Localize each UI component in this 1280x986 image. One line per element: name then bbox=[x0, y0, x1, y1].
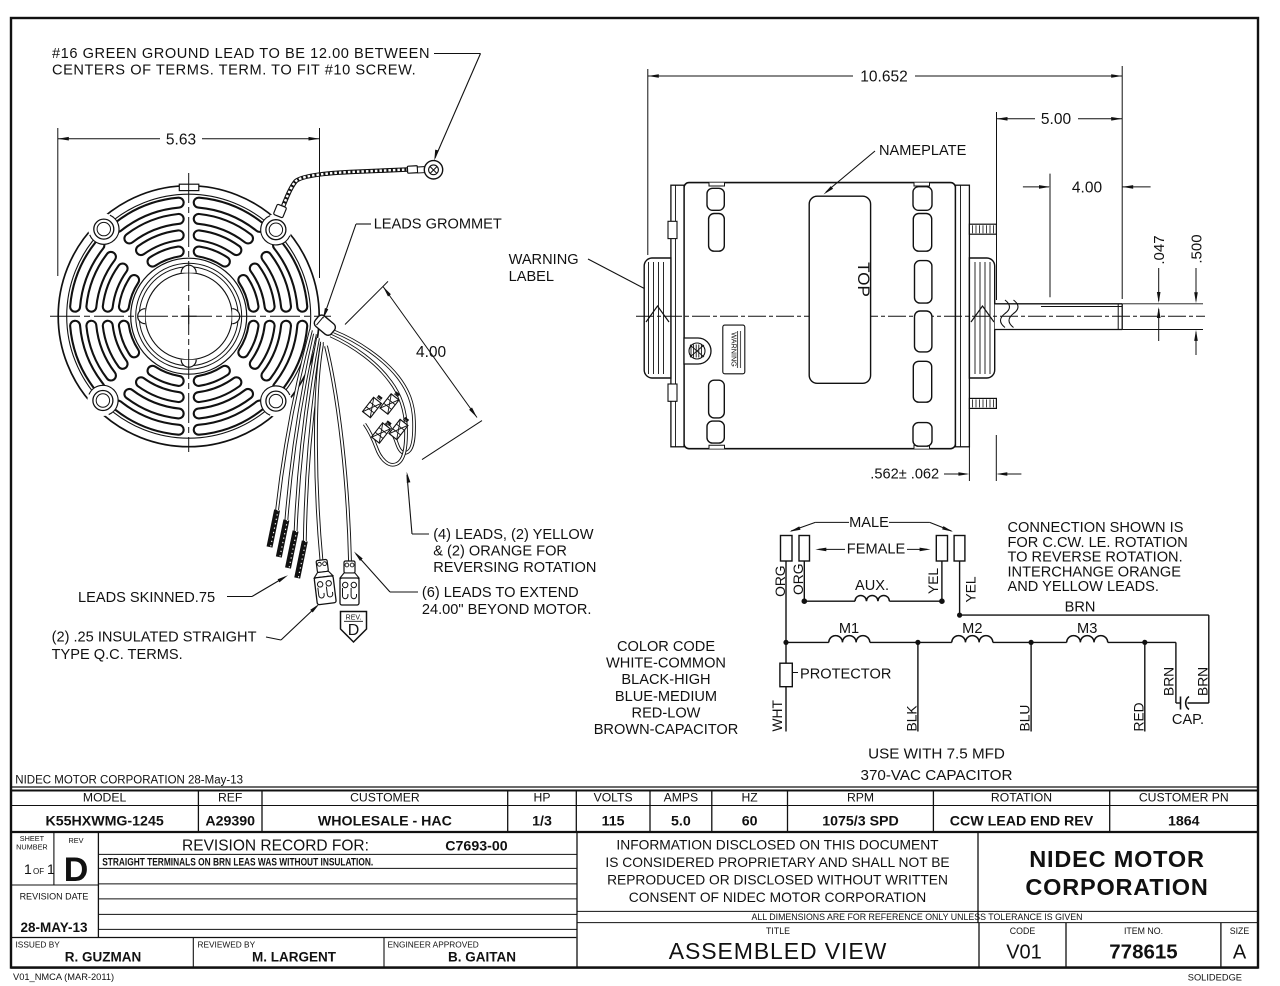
svg-text:INFORMATION DISCLOSED ON THIS: INFORMATION DISCLOSED ON THIS DOCUMENT bbox=[616, 838, 939, 853]
svg-text:WHOLESALE - HAC: WHOLESALE - HAC bbox=[318, 814, 452, 830]
svg-text:5.00: 5.00 bbox=[1041, 111, 1072, 128]
svg-text:CUSTOMER PN: CUSTOMER PN bbox=[1139, 791, 1229, 805]
svg-text:V01: V01 bbox=[1006, 942, 1042, 964]
svg-text:REVISION DATE: REVISION DATE bbox=[20, 892, 89, 902]
svg-text:OF: OF bbox=[33, 867, 44, 876]
svg-text:24.00" BEYOND MOTOR.: 24.00" BEYOND MOTOR. bbox=[422, 602, 592, 618]
svg-text:LABEL: LABEL bbox=[509, 269, 554, 285]
svg-text:REV.: REV. bbox=[346, 614, 362, 621]
svg-text:BRN: BRN bbox=[1162, 667, 1177, 696]
svg-text:CAP.: CAP. bbox=[1172, 712, 1204, 728]
svg-text:28-MAY-13: 28-MAY-13 bbox=[20, 920, 88, 935]
svg-text:ITEM NO.: ITEM NO. bbox=[1124, 926, 1163, 936]
svg-text:B. GAITAN: B. GAITAN bbox=[448, 950, 516, 965]
svg-text:RPM: RPM bbox=[847, 791, 874, 805]
svg-text:M2: M2 bbox=[962, 621, 982, 637]
svg-text:REVISION RECORD FOR:: REVISION RECORD FOR: bbox=[182, 838, 369, 855]
svg-text:HP: HP bbox=[534, 791, 551, 805]
svg-text:4.00: 4.00 bbox=[416, 344, 447, 361]
svg-text:NIDEC MOTOR CORPORATION 28-May: NIDEC MOTOR CORPORATION 28-May-13 bbox=[15, 775, 243, 787]
svg-text:1: 1 bbox=[24, 861, 32, 877]
svg-text:ASSEMBLED VIEW: ASSEMBLED VIEW bbox=[669, 938, 887, 964]
svg-text:MALE: MALE bbox=[849, 515, 889, 531]
svg-text:RED: RED bbox=[1132, 702, 1147, 731]
svg-text:#16 GREEN GROUND LEAD TO BE 12: #16 GREEN GROUND LEAD TO BE 12.00 BETWEE… bbox=[52, 46, 430, 62]
svg-text:CENTERS OF TERMS. TERM. TO FI: CENTERS OF TERMS. TERM. TO FIT #10 SCREW… bbox=[52, 63, 416, 79]
svg-text:FOR C.CW. LE. ROTATION: FOR C.CW. LE. ROTATION bbox=[1008, 535, 1188, 551]
svg-text:CONSENT OF NIDEC MOTOR CORPORA: CONSENT OF NIDEC MOTOR CORPORATION bbox=[629, 890, 926, 905]
svg-text:CUSTOMER: CUSTOMER bbox=[350, 791, 420, 805]
svg-text:10.652: 10.652 bbox=[860, 69, 907, 86]
svg-text:TO REVERSE ROTATION.: TO REVERSE ROTATION. bbox=[1008, 550, 1183, 566]
svg-text:REF: REF bbox=[218, 791, 242, 805]
svg-text:AMPS: AMPS bbox=[664, 791, 699, 805]
svg-text:FEMALE: FEMALE bbox=[847, 542, 906, 558]
svg-text:WHT: WHT bbox=[770, 700, 785, 732]
svg-text:SIZE: SIZE bbox=[1230, 926, 1250, 936]
svg-text:& (2) ORANGE FOR: & (2) ORANGE FOR bbox=[433, 544, 567, 560]
svg-text:AND YELLOW LEADS.: AND YELLOW LEADS. bbox=[1008, 579, 1159, 595]
svg-text:TOP: TOP bbox=[854, 262, 873, 297]
svg-text:NAMEPLATE: NAMEPLATE bbox=[879, 143, 967, 159]
svg-text:BROWN-CAPACITOR: BROWN-CAPACITOR bbox=[594, 722, 739, 738]
svg-text:M3: M3 bbox=[1077, 621, 1097, 637]
svg-text:LEADS GROMMET: LEADS GROMMET bbox=[374, 217, 502, 233]
svg-text:ALL DIMENSIONS ARE FOR REFEREN: ALL DIMENSIONS ARE FOR REFERENCE ONLY UN… bbox=[752, 912, 1083, 922]
svg-text:115: 115 bbox=[602, 814, 625, 830]
svg-text:COLOR CODE: COLOR CODE bbox=[617, 639, 715, 655]
svg-text:BLK: BLK bbox=[905, 705, 920, 732]
svg-text:1: 1 bbox=[47, 861, 55, 877]
svg-text:K55HXWMG-1245: K55HXWMG-1245 bbox=[45, 814, 163, 830]
svg-text:CODE: CODE bbox=[1010, 926, 1036, 936]
svg-text:D: D bbox=[348, 622, 360, 639]
svg-text:R. GUZMAN: R. GUZMAN bbox=[65, 950, 142, 965]
svg-text:(6) LEADS TO EXTEND: (6) LEADS TO EXTEND bbox=[422, 585, 579, 601]
svg-text:V01_NMCA (MAR-2011): V01_NMCA (MAR-2011) bbox=[13, 972, 114, 982]
svg-text:.500: .500 bbox=[1188, 234, 1205, 263]
svg-text:A: A bbox=[1233, 942, 1247, 964]
svg-text:RED-LOW: RED-LOW bbox=[632, 705, 701, 721]
svg-text:778615: 778615 bbox=[1109, 941, 1177, 964]
svg-text:LEADS SKINNED.75: LEADS SKINNED.75 bbox=[78, 590, 215, 606]
svg-text:(4) LEADS, (2) YELLOW: (4) LEADS, (2) YELLOW bbox=[433, 527, 594, 543]
svg-text:60: 60 bbox=[742, 814, 758, 830]
svg-text:BLACK-HIGH: BLACK-HIGH bbox=[621, 672, 710, 688]
svg-text:C7693-00: C7693-00 bbox=[445, 839, 507, 855]
svg-text:CCW LEAD END REV: CCW LEAD END REV bbox=[950, 814, 1094, 830]
svg-text:AUX.: AUX. bbox=[855, 578, 889, 594]
svg-text:USE WITH 7.5 MFD: USE WITH 7.5 MFD bbox=[868, 746, 1005, 763]
svg-text:BLUE-MEDIUM: BLUE-MEDIUM bbox=[615, 689, 717, 705]
svg-text:1864: 1864 bbox=[1168, 814, 1200, 830]
svg-text:1075/3 SPD: 1075/3 SPD bbox=[822, 814, 899, 830]
svg-text:HZ: HZ bbox=[741, 791, 758, 805]
svg-text:5.0: 5.0 bbox=[671, 814, 691, 830]
svg-text:TITLE: TITLE bbox=[766, 926, 790, 936]
svg-text:5.63: 5.63 bbox=[166, 132, 196, 149]
svg-text:STRAIGHT TERMINALS ON BRN LEAS: STRAIGHT TERMINALS ON BRN LEAS WAS WITHO… bbox=[102, 857, 373, 869]
svg-text:ISSUED BY: ISSUED BY bbox=[16, 940, 61, 950]
svg-text:CORPORATION: CORPORATION bbox=[1025, 874, 1208, 900]
svg-text:REPRODUCED OR DISCLOSED WITHOU: REPRODUCED OR DISCLOSED WITHOUT WRITTEN bbox=[607, 873, 948, 888]
svg-text:BRN: BRN bbox=[1065, 600, 1096, 616]
svg-text:4.00: 4.00 bbox=[1072, 180, 1103, 197]
svg-text:NUMBER: NUMBER bbox=[16, 843, 48, 852]
svg-text:REV: REV bbox=[68, 836, 83, 845]
svg-text:INTERCHANGE ORANGE: INTERCHANGE ORANGE bbox=[1008, 564, 1182, 580]
svg-text:REVERSING ROTATION: REVERSING ROTATION bbox=[433, 560, 596, 576]
svg-text:1/3: 1/3 bbox=[532, 814, 552, 830]
svg-text:D: D bbox=[64, 851, 89, 889]
svg-text:M. LARGENT: M. LARGENT bbox=[252, 950, 337, 965]
svg-text:CONNECTION SHOWN IS: CONNECTION SHOWN IS bbox=[1008, 520, 1184, 536]
svg-text:YEL: YEL bbox=[964, 576, 979, 602]
svg-text:WARNING: WARNING bbox=[509, 252, 579, 268]
svg-text:NIDEC MOTOR: NIDEC MOTOR bbox=[1029, 846, 1204, 872]
svg-text:YEL: YEL bbox=[926, 568, 941, 594]
svg-text:ENGINEER APPROVED: ENGINEER APPROVED bbox=[388, 940, 479, 950]
svg-text:WHITE-COMMON: WHITE-COMMON bbox=[606, 656, 726, 672]
svg-text:VOLTS: VOLTS bbox=[594, 791, 633, 805]
svg-text:M1: M1 bbox=[839, 621, 859, 637]
svg-text:BRN: BRN bbox=[1196, 667, 1211, 696]
svg-text:IS CONSIDERED PROPRIETARY AND: IS CONSIDERED PROPRIETARY AND SHALL NOT … bbox=[605, 855, 949, 870]
svg-text:ROTATION: ROTATION bbox=[991, 791, 1052, 805]
svg-text:A29390: A29390 bbox=[205, 814, 255, 830]
svg-text:.047: .047 bbox=[1151, 235, 1168, 264]
svg-text:.562± .062: .562± .062 bbox=[870, 467, 939, 483]
svg-text:(2) .25 INSULATED STRAIGHT: (2) .25 INSULATED STRAIGHT bbox=[52, 630, 257, 646]
svg-text:SOLIDEDGE: SOLIDEDGE bbox=[1188, 973, 1242, 983]
svg-text:370-VAC CAPACITOR: 370-VAC CAPACITOR bbox=[861, 767, 1013, 784]
svg-text:BLU: BLU bbox=[1018, 705, 1033, 732]
svg-text:PROTECTOR: PROTECTOR bbox=[800, 667, 891, 683]
svg-text:MODEL: MODEL bbox=[83, 791, 127, 805]
svg-text:REVIEWED BY: REVIEWED BY bbox=[198, 940, 256, 950]
svg-text:TYPE Q.C. TERMS.: TYPE Q.C. TERMS. bbox=[52, 647, 183, 663]
